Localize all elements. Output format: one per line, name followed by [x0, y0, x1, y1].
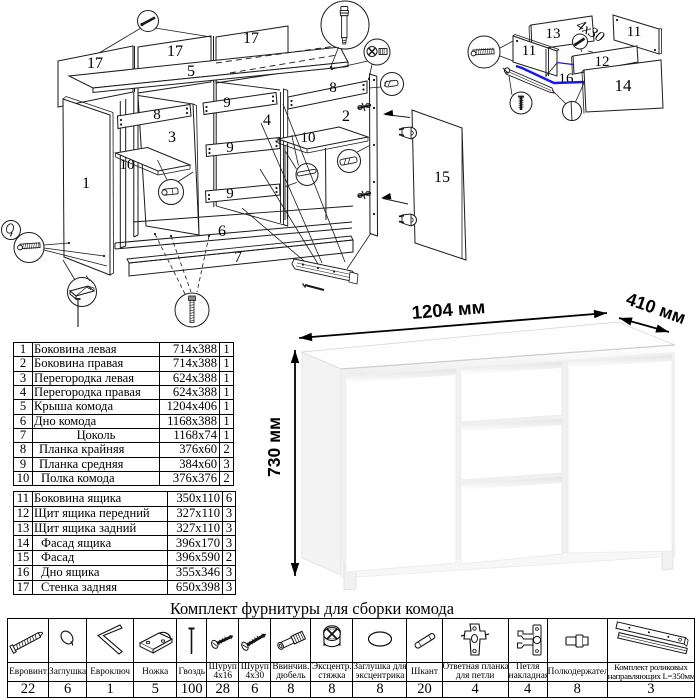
svg-text:5: 5: [187, 63, 195, 80]
svg-text:16: 16: [559, 71, 575, 87]
svg-text:11: 11: [627, 24, 641, 40]
svg-text:4: 4: [263, 112, 271, 129]
svg-text:9: 9: [226, 186, 234, 202]
svg-text:3: 3: [168, 129, 176, 146]
svg-text:13: 13: [546, 26, 561, 42]
svg-text:8: 8: [329, 80, 337, 96]
svg-text:2: 2: [342, 108, 350, 125]
svg-text:11: 11: [522, 43, 536, 59]
svg-text:15: 15: [434, 169, 450, 186]
svg-text:1: 1: [82, 175, 90, 192]
svg-text:17: 17: [87, 55, 103, 72]
svg-text:14: 14: [615, 76, 633, 95]
svg-text:9: 9: [223, 95, 231, 111]
svg-text:17: 17: [243, 30, 259, 47]
svg-text:730 мм: 730 мм: [264, 417, 284, 477]
svg-text:10: 10: [301, 130, 316, 146]
svg-text:9: 9: [226, 140, 234, 156]
svg-text:8: 8: [153, 107, 161, 123]
svg-text:1204 мм: 1204 мм: [411, 296, 486, 323]
svg-text:17: 17: [167, 43, 183, 60]
svg-text:7: 7: [234, 249, 242, 266]
svg-text:6: 6: [218, 223, 226, 240]
svg-text:10: 10: [120, 157, 135, 173]
